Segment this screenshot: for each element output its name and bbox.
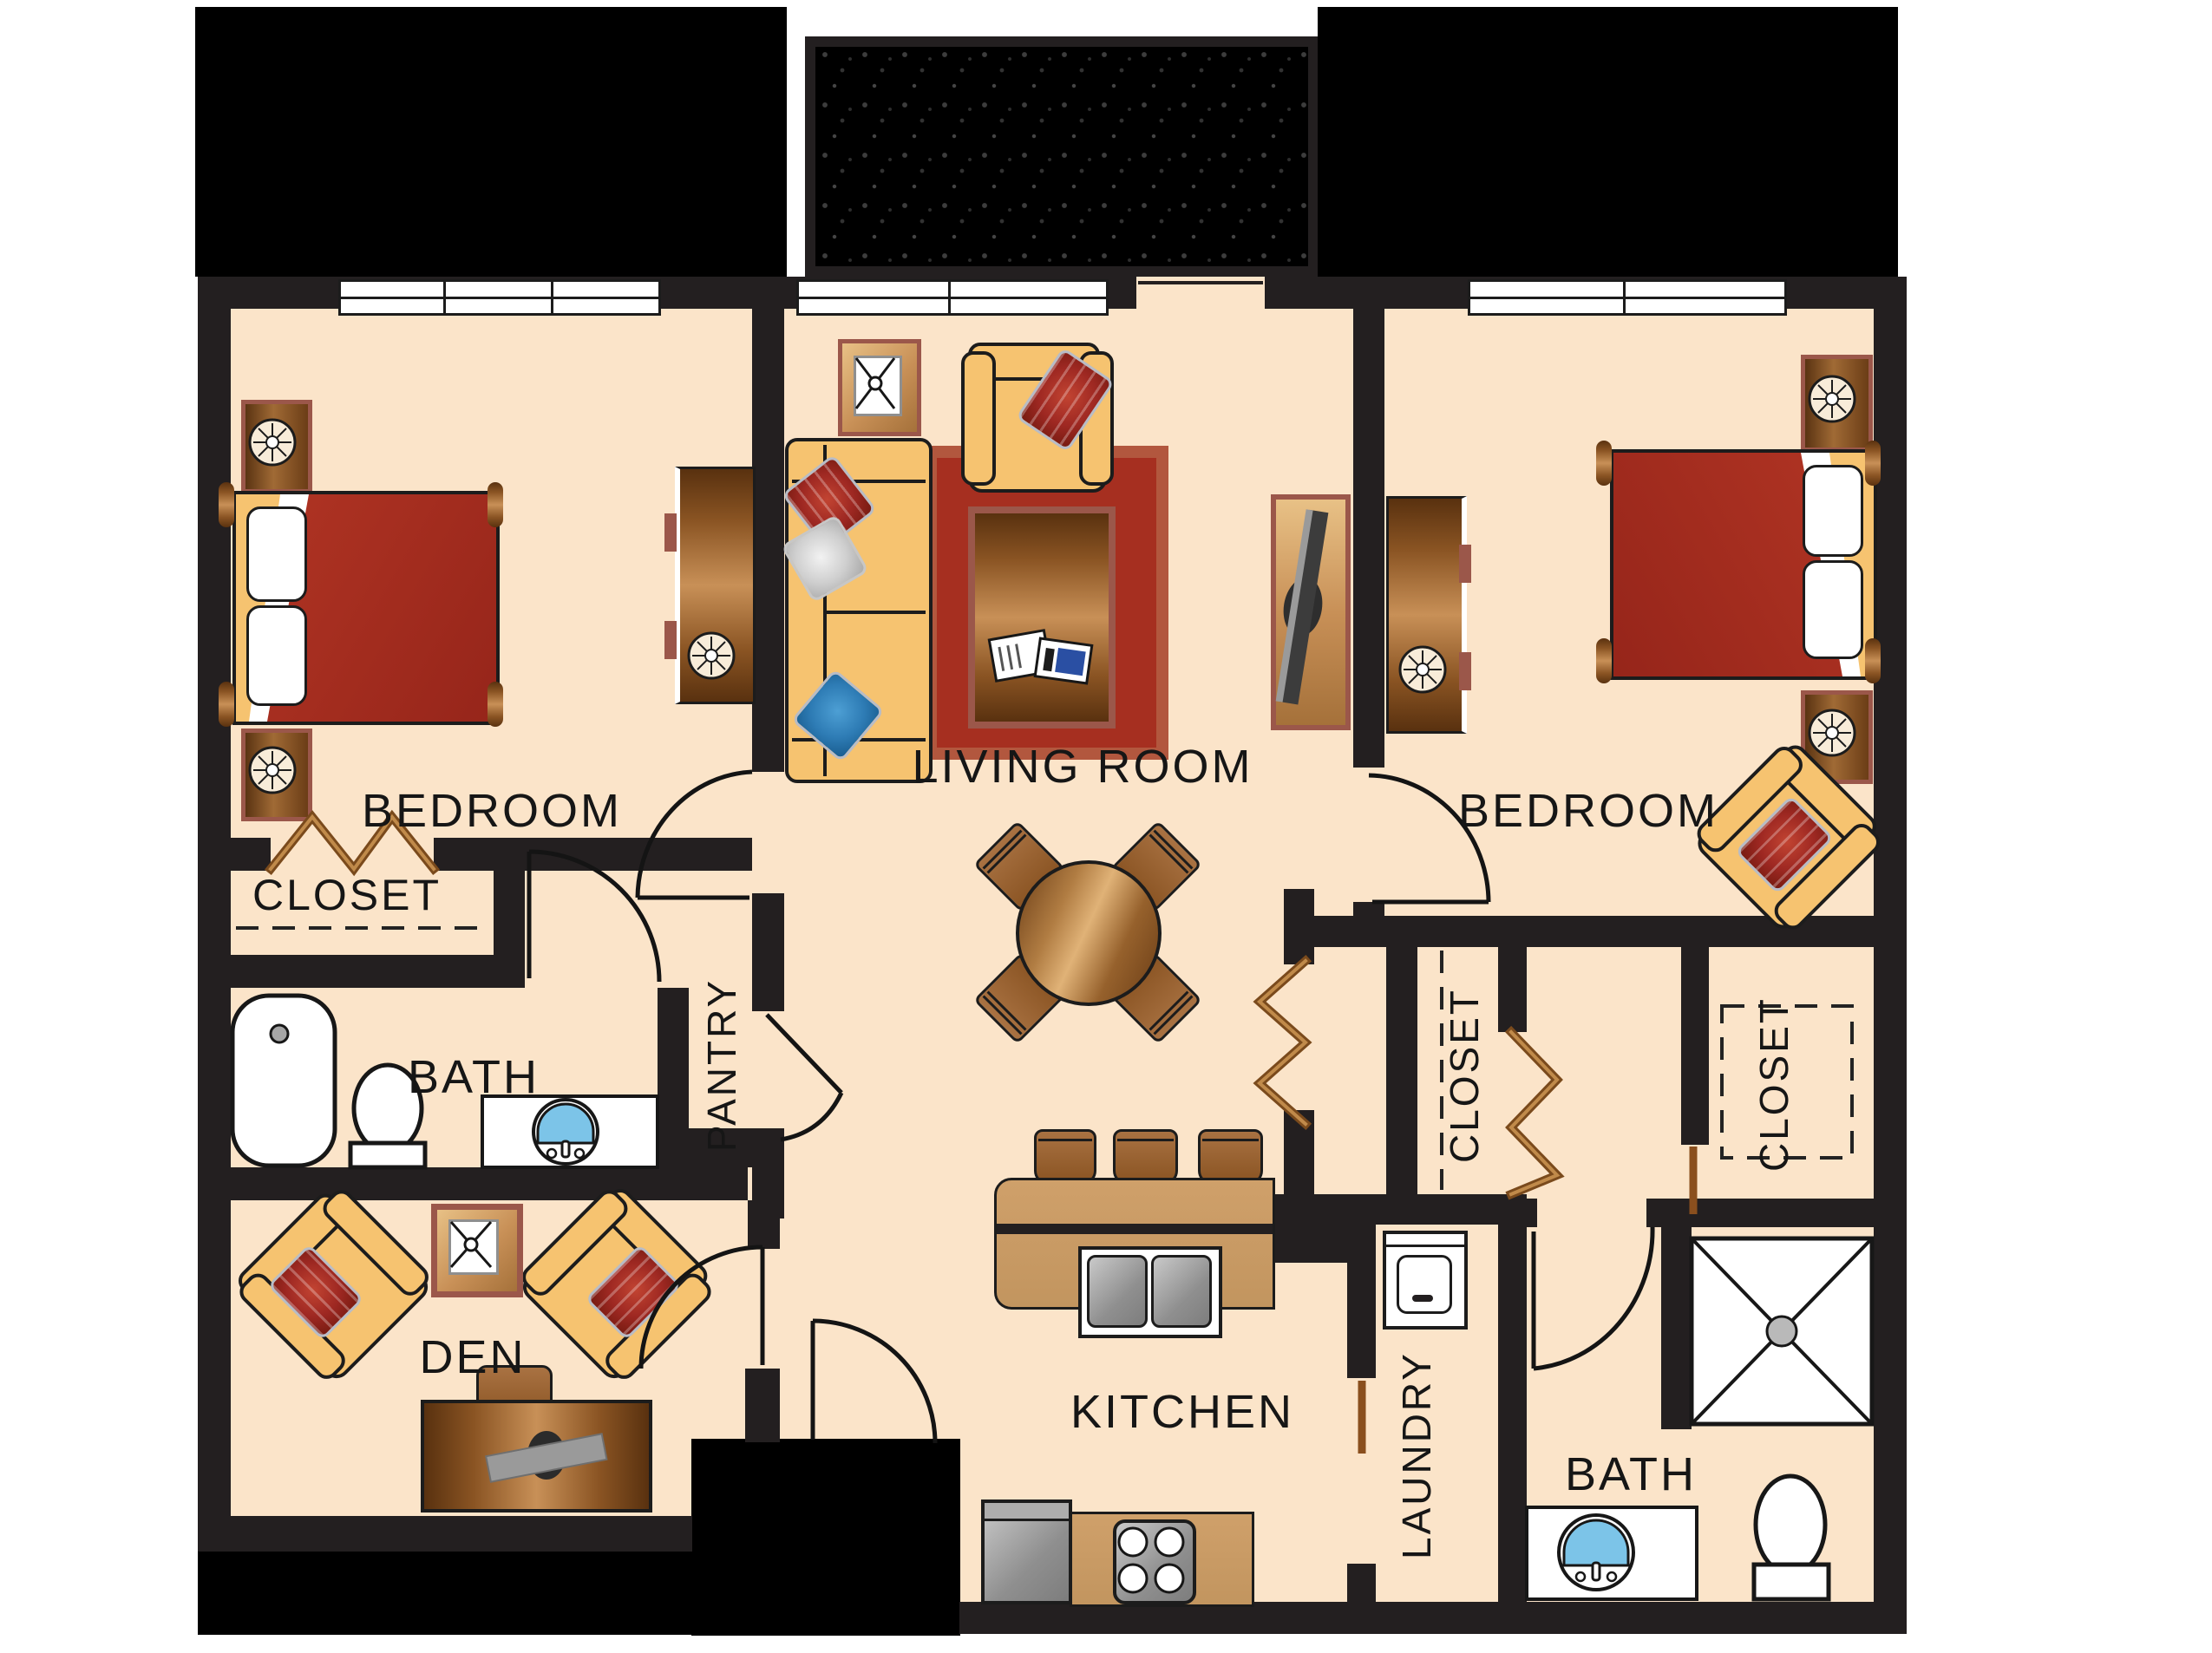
stove-burners: [1119, 1528, 1183, 1592]
floor-plan: BEDROOM LIVING ROOM BEDROOM CLOSET BATH …: [0, 0, 2212, 1653]
door-pantry: [781, 1093, 841, 1140]
door-bath-right: [1534, 1227, 1652, 1369]
room-label-kitchen: KITCHEN: [1070, 1385, 1294, 1439]
toilet-tank: [350, 1143, 425, 1167]
tv: [1269, 508, 1337, 706]
room-label-laundry: LAUNDRY: [1393, 1351, 1440, 1559]
room-label-pantry: PANTRY: [698, 978, 745, 1152]
magazines: [989, 630, 1091, 683]
shower-drain: [1767, 1317, 1796, 1346]
room-label-bedroom-right: BEDROOM: [1458, 784, 1718, 838]
closet-rod-hall-right: [1511, 1032, 1557, 1194]
rosette-lamps: [250, 376, 1855, 793]
room-label-closet-left: CLOSET: [252, 870, 442, 920]
closet-rod-hall-left: [1260, 961, 1306, 1124]
room-label-closet-hall: CLOSET: [1441, 988, 1488, 1163]
tub-drain: [271, 1025, 288, 1042]
sink-faucet: [562, 1141, 569, 1157]
rosette: [689, 633, 734, 678]
rosette: [250, 748, 295, 793]
room-label-bath-right: BATH: [1565, 1447, 1697, 1501]
door-den: [641, 1247, 762, 1369]
sink-faucet: [1593, 1563, 1600, 1580]
laptop: [486, 1431, 606, 1482]
room-label-bath-left: BATH: [408, 1050, 540, 1104]
bathtub: [232, 996, 335, 1166]
door-entry: [813, 1321, 935, 1443]
room-label-den: DEN: [419, 1330, 526, 1384]
rosette: [1810, 710, 1855, 755]
room-label-bedroom-left: BEDROOM: [362, 784, 622, 838]
door-bedroom1: [638, 772, 752, 898]
bath-right-fixtures: [1527, 1238, 1872, 1599]
room-label-living-room: LIVING ROOM: [912, 740, 1253, 794]
toilet-tank: [1754, 1565, 1829, 1599]
rosette: [1810, 376, 1855, 421]
room-label-closet-right: CLOSET: [1751, 996, 1797, 1172]
closet-rods: [271, 817, 1557, 1194]
rosette: [250, 420, 295, 465]
toilet-bowl: [1756, 1476, 1825, 1573]
rosette: [1400, 647, 1445, 692]
